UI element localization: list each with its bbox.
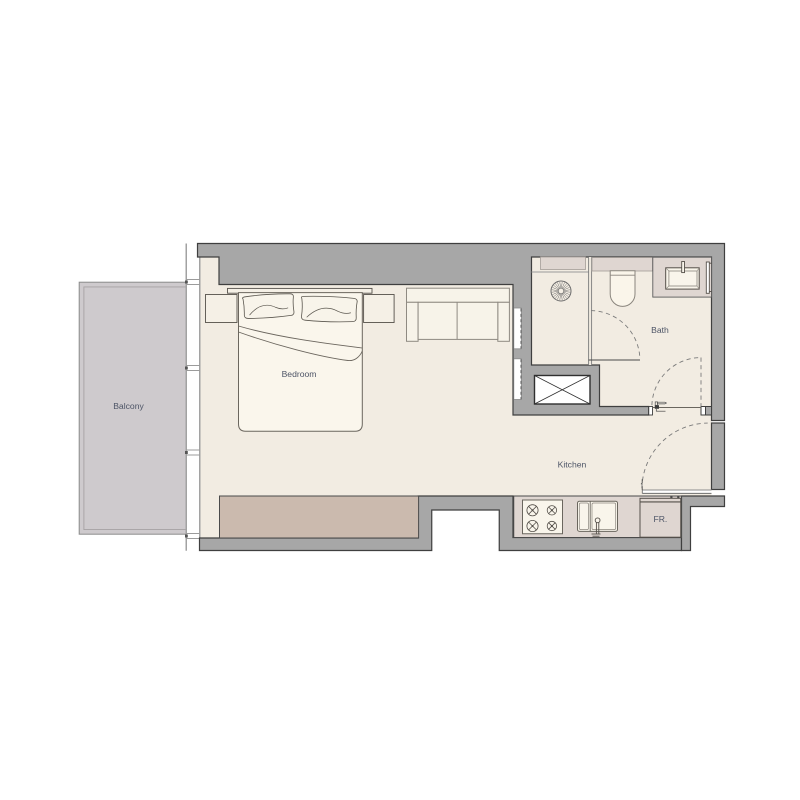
svg-text:Balcony: Balcony: [113, 401, 144, 411]
svg-text:Bedroom: Bedroom: [282, 369, 317, 379]
svg-text:FR.: FR.: [653, 514, 667, 524]
svg-text:Kitchen: Kitchen: [558, 459, 587, 469]
svg-text:Bath: Bath: [651, 325, 669, 335]
